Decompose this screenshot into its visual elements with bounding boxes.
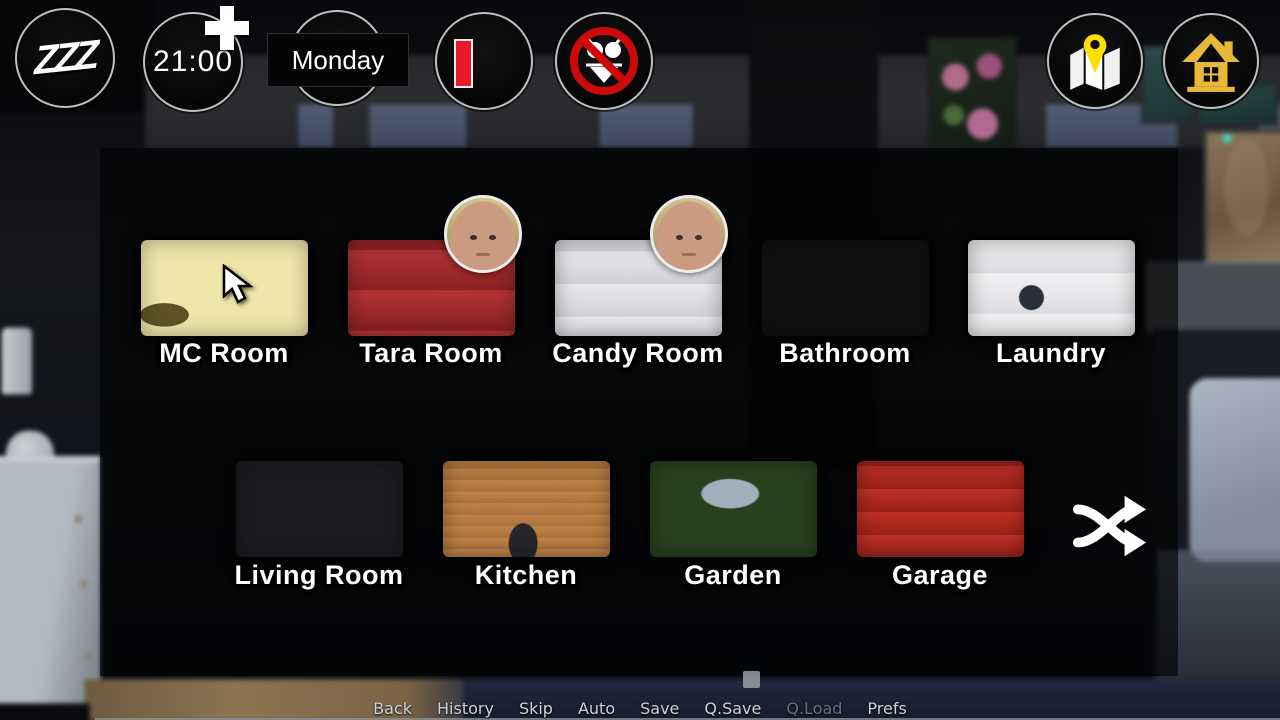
quickmenu-history[interactable]: History (437, 699, 494, 718)
tara-avatar (444, 195, 522, 273)
home-icon (1178, 28, 1244, 94)
quickmenu-save[interactable]: Save (640, 699, 679, 718)
bg-vase (2, 328, 32, 395)
bg-shadow (0, 703, 90, 720)
add-time-plus-icon[interactable] (205, 6, 249, 50)
shuffle-button[interactable] (1070, 486, 1148, 564)
quick-menu: Back History Skip Auto Save Q.Save Q.Loa… (373, 699, 907, 718)
room-thumb-laundry[interactable] (968, 240, 1135, 336)
bg-window-pane (600, 104, 693, 146)
no-bikini-button[interactable] (555, 12, 653, 110)
energy-indicator (435, 12, 533, 110)
room-thumb-kitchen[interactable] (443, 461, 610, 557)
bg-led-dot (1224, 135, 1231, 142)
room-label-bathroom: Bathroom (740, 338, 950, 369)
scrollbar-handle[interactable] (743, 671, 760, 688)
bg-drawer-knob (80, 579, 87, 588)
map-button[interactable] (1047, 13, 1143, 109)
map-icon (1062, 28, 1128, 94)
bg-window-pane (299, 104, 333, 146)
navigation-panel (100, 148, 1178, 676)
bg-drawer-knob (74, 515, 81, 524)
bg-portrait-poster (1204, 130, 1280, 265)
room-label-mc-room: MC Room (119, 338, 329, 369)
room-thumb-living-room[interactable] (236, 461, 403, 557)
time-value: 21:00 (153, 45, 233, 79)
room-label-garage: Garage (835, 560, 1045, 591)
room-label-living-room: Living Room (214, 560, 424, 591)
room-label-candy-room: Candy Room (533, 338, 743, 369)
bg-pillow (1189, 378, 1280, 562)
room-thumb-bathroom[interactable] (762, 240, 929, 336)
room-label-kitchen: Kitchen (421, 560, 631, 591)
quickmenu-qload: Q.Load (786, 699, 842, 718)
room-label-laundry: Laundry (946, 338, 1156, 369)
quickmenu-prefs[interactable]: Prefs (867, 699, 906, 718)
game-screen: MC Room Tara Room Candy Room Bathroom La… (0, 0, 1280, 720)
day-badge: Monday (267, 33, 409, 87)
zzz-icon: ZZZ (35, 32, 96, 84)
room-thumb-garage[interactable] (857, 461, 1024, 557)
quickmenu-skip[interactable]: Skip (519, 699, 553, 718)
mouse-cursor (220, 264, 262, 306)
candy-avatar (650, 195, 728, 273)
bg-drawer-knob (86, 652, 93, 661)
quickmenu-auto[interactable]: Auto (578, 699, 615, 718)
sleep-button[interactable]: ZZZ (15, 8, 115, 108)
no-bikini-icon (568, 25, 640, 97)
room-label-garden: Garden (628, 560, 838, 591)
quickmenu-back[interactable]: Back (373, 699, 412, 718)
home-button[interactable] (1163, 13, 1259, 109)
shuffle-icon (1070, 486, 1148, 564)
quickmenu-qsave[interactable]: Q.Save (704, 699, 761, 718)
bg-flower-painting (928, 37, 1017, 150)
day-value: Monday (292, 45, 385, 76)
room-label-tara-room: Tara Room (326, 338, 536, 369)
room-thumb-garden[interactable] (650, 461, 817, 557)
bg-window-pane (369, 104, 466, 146)
energy-bar-icon (454, 39, 473, 88)
